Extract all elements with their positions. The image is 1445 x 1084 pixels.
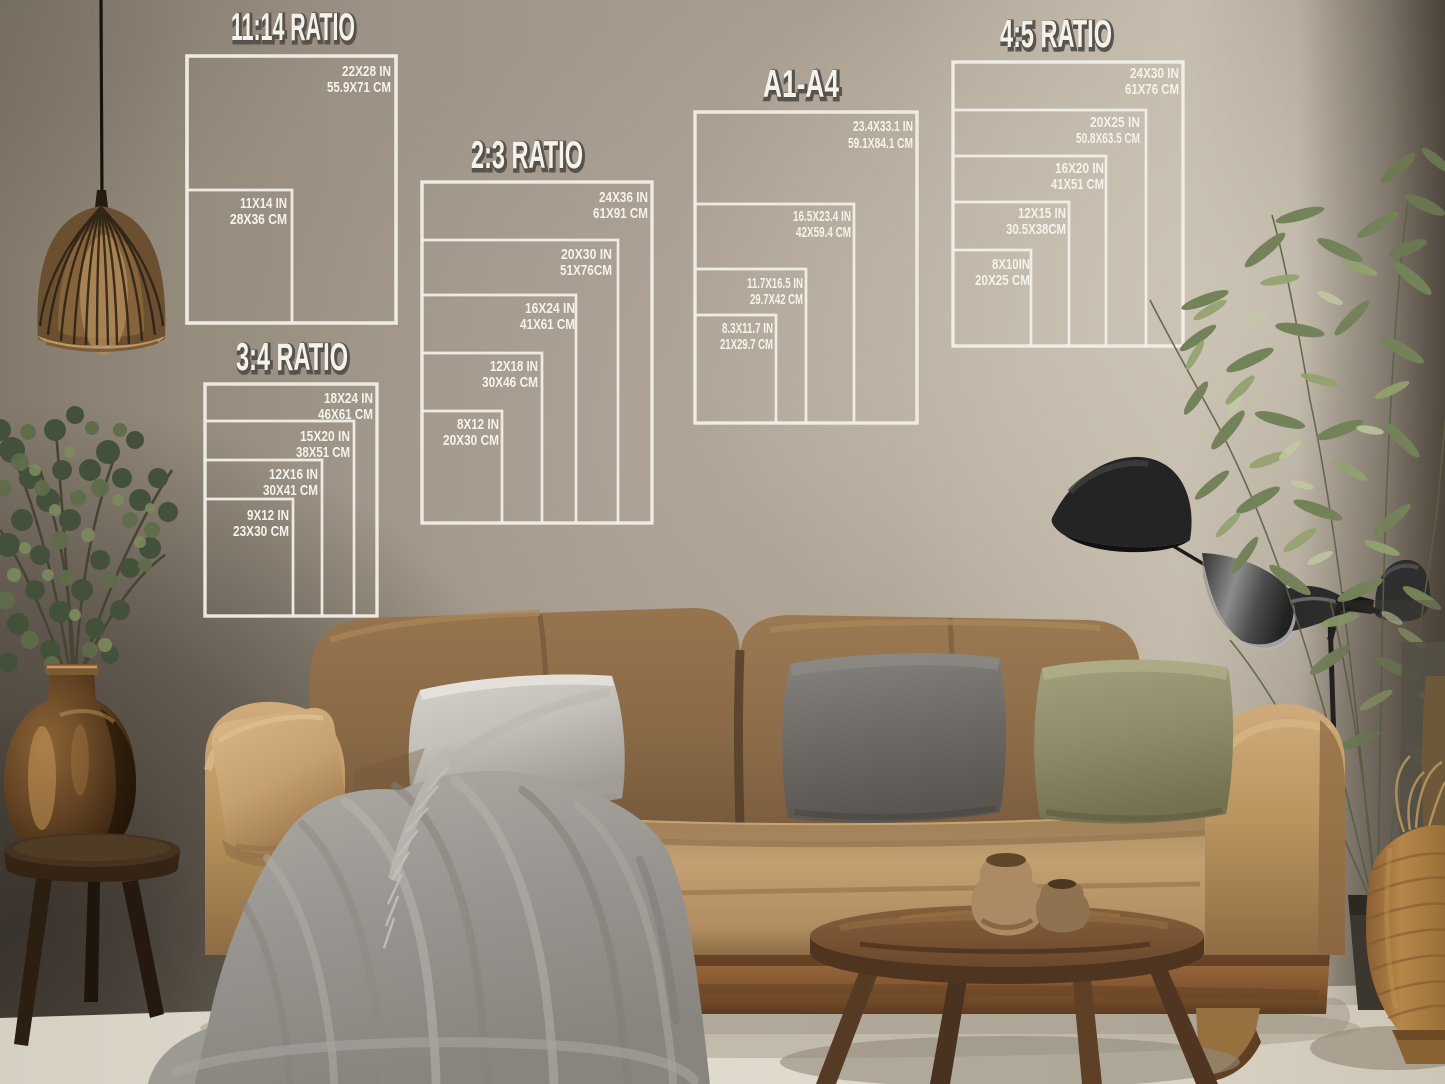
svg-text:28X36 CM: 28X36 CM <box>230 211 287 228</box>
svg-text:21X29.7 CM: 21X29.7 CM <box>720 336 773 353</box>
svg-text:22X28 IN: 22X28 IN <box>342 63 391 80</box>
svg-text:50.8X63.5 CM: 50.8X63.5 CM <box>1076 130 1140 147</box>
svg-text:41X61 CM: 41X61 CM <box>520 316 575 333</box>
svg-text:15X20 IN: 15X20 IN <box>300 428 350 445</box>
svg-text:61X91 CM: 61X91 CM <box>593 205 648 222</box>
svg-text:12X18 IN: 12X18 IN <box>490 358 538 375</box>
svg-text:20X30 IN: 20X30 IN <box>561 246 612 263</box>
svg-text:30.5X38CM: 30.5X38CM <box>1006 221 1066 238</box>
svg-text:8.3X11.7 IN: 8.3X11.7 IN <box>722 320 773 337</box>
svg-text:9X12 IN: 9X12 IN <box>247 507 289 524</box>
svg-text:20X30 CM: 20X30 CM <box>443 432 499 449</box>
svg-text:8X12 IN: 8X12 IN <box>457 416 499 433</box>
svg-text:11:14 RATIO: 11:14 RATIO <box>231 6 355 49</box>
svg-text:16.5X23.4 IN: 16.5X23.4 IN <box>793 208 851 225</box>
svg-text:11.7X16.5 IN: 11.7X16.5 IN <box>747 275 803 292</box>
svg-text:29.7X42 CM: 29.7X42 CM <box>750 291 803 308</box>
svg-text:46X61 CM: 46X61 CM <box>318 406 373 423</box>
svg-text:20X25 CM: 20X25 CM <box>975 272 1030 289</box>
svg-text:4:5 RATIO: 4:5 RATIO <box>1000 13 1112 56</box>
svg-text:8X10IN: 8X10IN <box>992 256 1030 273</box>
svg-text:55.9X71 CM: 55.9X71 CM <box>327 79 391 96</box>
svg-text:61X76 CM: 61X76 CM <box>1125 81 1179 98</box>
svg-text:12X16 IN: 12X16 IN <box>269 466 318 483</box>
svg-text:41X51 CM: 41X51 CM <box>1051 176 1104 193</box>
svg-text:3:4 RATIO: 3:4 RATIO <box>236 336 348 379</box>
svg-text:38X51 CM: 38X51 CM <box>296 444 350 461</box>
svg-text:18X24 IN: 18X24 IN <box>324 390 373 407</box>
svg-text:20X25 IN: 20X25 IN <box>1090 114 1140 131</box>
svg-text:30X46 CM: 30X46 CM <box>482 374 538 391</box>
svg-text:24X30 IN: 24X30 IN <box>1130 65 1179 82</box>
svg-text:A1-A4: A1-A4 <box>763 63 839 106</box>
svg-text:16X20 IN: 16X20 IN <box>1055 160 1104 177</box>
svg-text:23X30 CM: 23X30 CM <box>233 523 289 540</box>
svg-text:30X41 CM: 30X41 CM <box>263 482 318 499</box>
svg-text:24X36 IN: 24X36 IN <box>599 189 648 206</box>
svg-text:16X24 IN: 16X24 IN <box>525 300 575 317</box>
svg-text:2:3 RATIO: 2:3 RATIO <box>471 134 583 177</box>
svg-text:11X14 IN: 11X14 IN <box>240 195 287 212</box>
svg-text:42X59.4 CM: 42X59.4 CM <box>796 224 851 241</box>
svg-text:59.1X84.1 CM: 59.1X84.1 CM <box>848 135 913 152</box>
svg-text:51X76CM: 51X76CM <box>560 262 612 279</box>
svg-text:12X15 IN: 12X15 IN <box>1018 205 1066 222</box>
svg-text:23.4X33.1 IN: 23.4X33.1 IN <box>853 118 913 135</box>
